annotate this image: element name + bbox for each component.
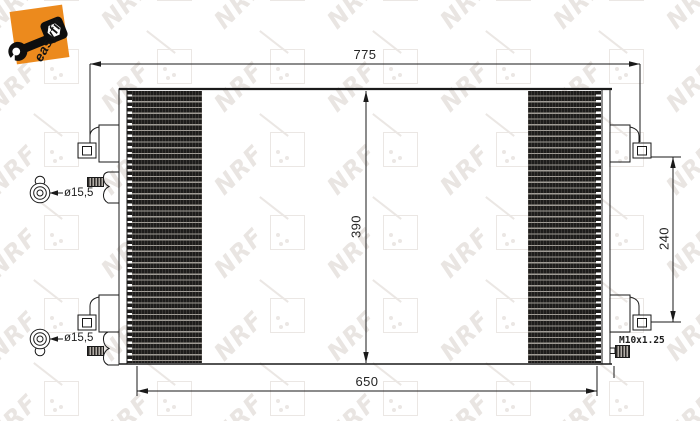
lower-port-label: ø15,5 [64, 332, 93, 344]
upper-port-label: ø15,5 [64, 187, 93, 199]
mount-bracket-bottom-right [610, 295, 651, 332]
mount-bracket-bottom-left [78, 295, 119, 332]
condenser-drawing-page: NRFNRFNRFNRFNRFNRFNRFNRFNRFNRFNRFNRFNRFN… [0, 0, 700, 421]
mount-bracket-top-left [78, 125, 119, 162]
upper-left-fitting-block [103, 172, 119, 203]
drain-plug-outline [610, 348, 615, 378]
plug-thread-label: M10x1.25 [619, 335, 665, 346]
core-width-value: 650 [341, 374, 393, 389]
easyfit-logo: easyfit [0, 0, 86, 78]
mount-bracket-top-right [610, 125, 651, 162]
upper-port-face-view [30, 176, 63, 203]
mount-span-value: 240 [657, 223, 672, 255]
core-height-dimension [363, 91, 368, 363]
overall-width-value: 775 [339, 47, 391, 62]
core-height-value: 390 [349, 211, 364, 243]
lower-port-face-view [30, 329, 63, 356]
lower-left-fitting-block [103, 332, 119, 365]
